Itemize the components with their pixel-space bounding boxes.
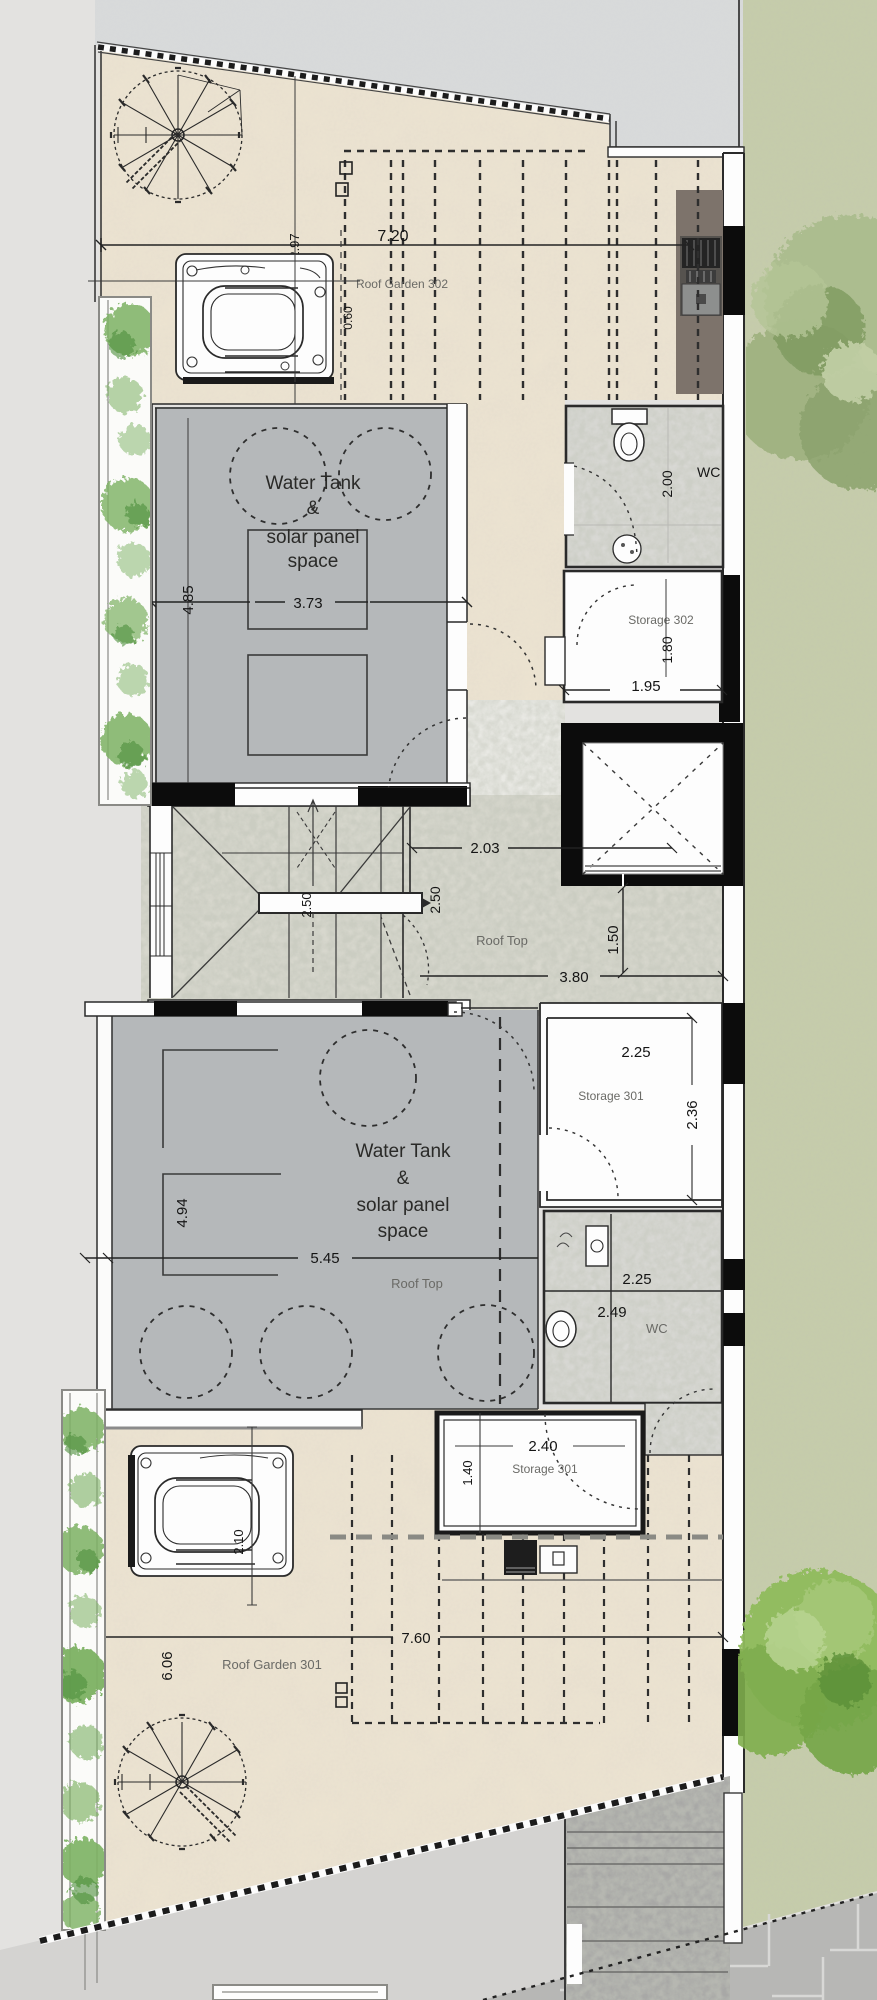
svg-text:2.50: 2.50: [299, 892, 314, 917]
svg-text:space: space: [378, 1221, 429, 1242]
svg-text:7.20: 7.20: [377, 228, 408, 245]
svg-text:1.40: 1.40: [460, 1460, 475, 1485]
svg-text:Storage 301: Storage 301: [578, 1089, 644, 1103]
svg-text:2.49: 2.49: [597, 1304, 626, 1321]
svg-text:4.85: 4.85: [180, 585, 197, 614]
svg-text:WC: WC: [646, 1321, 668, 1336]
svg-text:solar panel: solar panel: [267, 527, 360, 548]
svg-text:Roof Garden 302: Roof Garden 302: [356, 277, 448, 291]
svg-text:1.95: 1.95: [631, 678, 660, 695]
svg-text:3.80: 3.80: [559, 969, 588, 986]
svg-text:2.03: 2.03: [470, 840, 499, 857]
svg-text:2.40: 2.40: [528, 1438, 557, 1455]
svg-text:2.25: 2.25: [622, 1271, 651, 1288]
svg-text:5.45: 5.45: [310, 1250, 339, 1267]
svg-text:Roof Top: Roof Top: [391, 1276, 443, 1291]
svg-text:&: &: [397, 1168, 410, 1189]
svg-text:2.00: 2.00: [659, 470, 675, 497]
svg-text:0.60: 0.60: [341, 306, 355, 330]
svg-text:space: space: [288, 551, 339, 572]
svg-text:Storage 302: Storage 302: [628, 613, 694, 627]
svg-text:2.50: 2.50: [427, 886, 443, 913]
svg-text:&: &: [307, 498, 320, 519]
svg-text:Water Tank: Water Tank: [265, 473, 361, 494]
svg-text:Roof Garden 301: Roof Garden 301: [222, 1657, 322, 1672]
svg-text:WC: WC: [697, 464, 720, 480]
svg-text:6.06: 6.06: [159, 1651, 176, 1680]
svg-text:Storage 301: Storage 301: [512, 1462, 578, 1476]
svg-text:Water Tank: Water Tank: [355, 1141, 451, 1162]
svg-text:Roof Top: Roof Top: [476, 933, 528, 948]
svg-text:7.60: 7.60: [401, 1630, 430, 1647]
svg-text:2.10: 2.10: [231, 1529, 246, 1554]
svg-text:solar panel: solar panel: [357, 1195, 450, 1216]
svg-text:3.73: 3.73: [293, 595, 322, 612]
svg-text:2.36: 2.36: [684, 1100, 701, 1129]
svg-text:1.80: 1.80: [659, 636, 675, 663]
svg-text:2.25: 2.25: [621, 1044, 650, 1061]
svg-text:1.50: 1.50: [605, 925, 622, 954]
svg-text:4.94: 4.94: [174, 1198, 191, 1227]
